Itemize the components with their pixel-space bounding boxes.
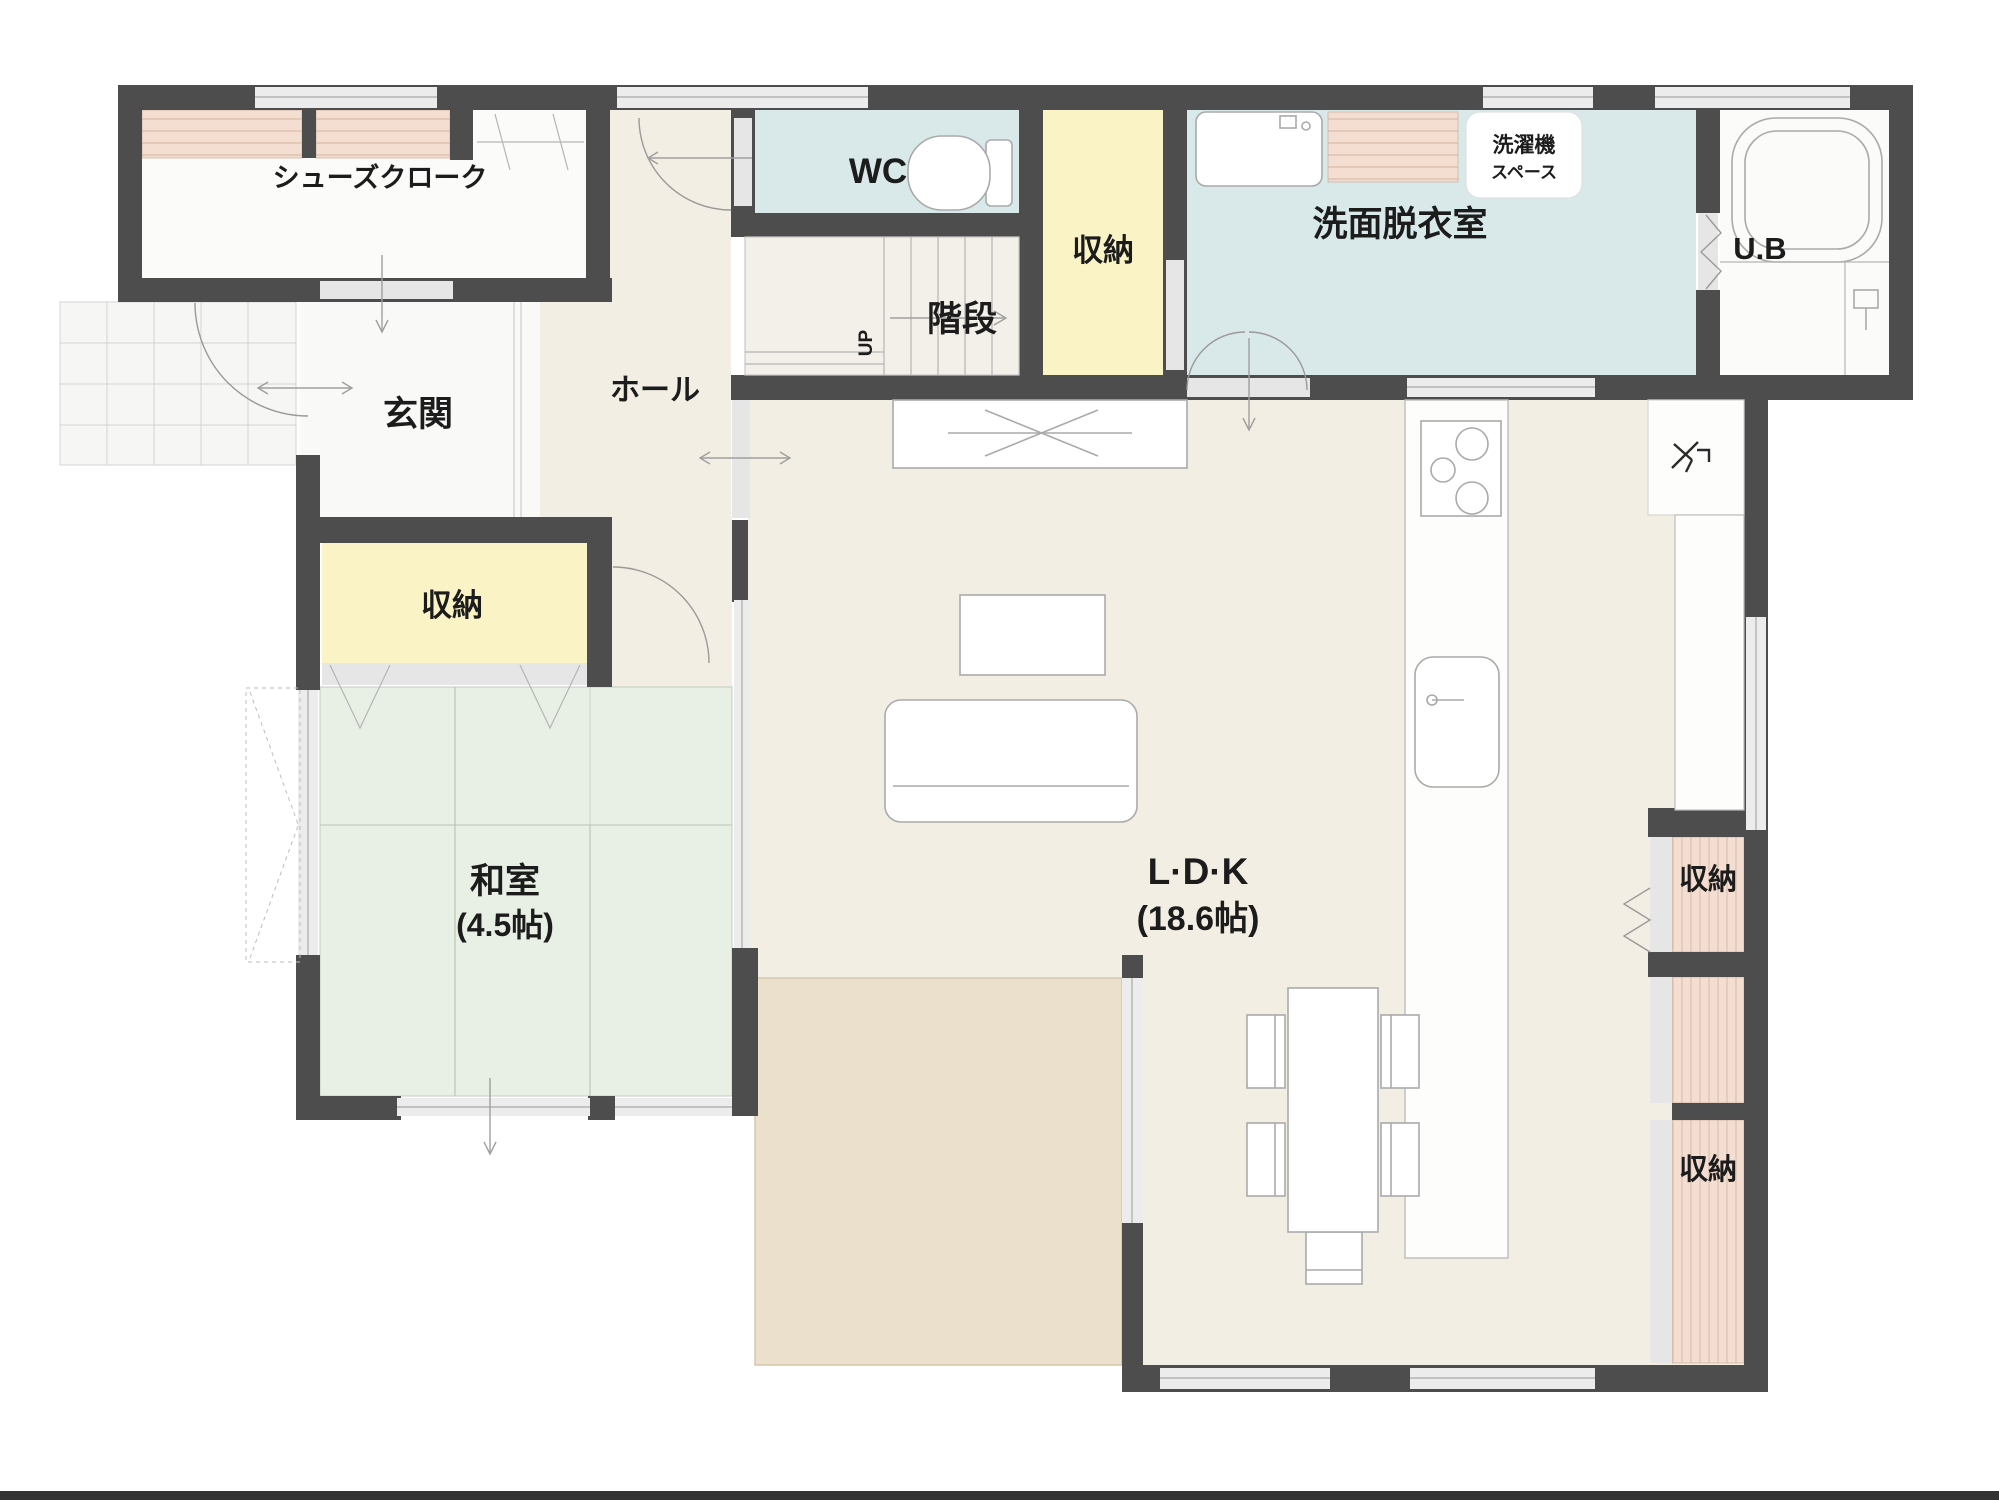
tv-board-icon [893,400,1187,468]
label-hall: ホール [610,374,700,407]
refrigerator-nook [1648,400,1744,515]
label-entrance: 玄関 [383,395,453,434]
floor-plan-drawing: シューズクローク 玄関 ホール WC 階段 UP 収納 洗面脱衣室 洗濯機 スペ… [0,0,1999,1500]
label-ldk-size: (18.6帖) [1137,900,1260,938]
label-unit-bath: U.B [1733,231,1786,266]
shoes-shelf-right [316,110,450,158]
coffee-table-icon [960,595,1105,675]
hall-floor-low [612,517,732,687]
kitchen-sink-icon [1415,657,1499,787]
shoes-shelf-left [142,110,302,158]
label-shoes-closet: シューズクローク [273,162,488,193]
washroom-sink-icon [1196,112,1322,186]
label-entrance-storage: 収納 [421,588,483,623]
label-storage-right-top: 収納 [1679,862,1737,896]
toilet-icon [908,136,1012,210]
label-stairs-storage: 収納 [1072,233,1134,268]
storm-shutter-box [246,688,300,962]
label-washer-1: 洗濯機 [1493,133,1556,157]
sofa-icon [885,700,1137,822]
label-japanese-room-size: (4.5帖) [456,907,554,943]
dining-table-icon [1288,988,1378,1232]
right-storage-shelf-mid [1672,977,1744,1103]
label-washroom: 洗面脱衣室 [1312,204,1487,244]
label-stairs: 階段 [927,299,997,339]
footer-rule [0,1491,1999,1500]
hall-floor-mid [540,302,731,517]
back-counter [1675,515,1744,810]
label-washer-2: スペース [1491,163,1557,182]
stove-icon [1421,421,1501,516]
washroom-shelf [1328,112,1458,182]
label-wc: WC [849,152,907,191]
hall-floor-top [610,110,731,302]
label-storage-right-bottom: 収納 [1679,1152,1737,1186]
floor-plan-page: シューズクローク 玄関 ホール WC 階段 UP 収納 洗面脱衣室 洗濯機 スペ… [0,0,1999,1500]
wood-deck [755,978,1122,1365]
label-stairs-up: UP [856,329,877,356]
porch-tiles [60,302,296,465]
label-japanese-room: 和室 [470,861,540,901]
kitchen-counter [1405,400,1508,1258]
label-ldk: L·D·K [1148,851,1249,892]
